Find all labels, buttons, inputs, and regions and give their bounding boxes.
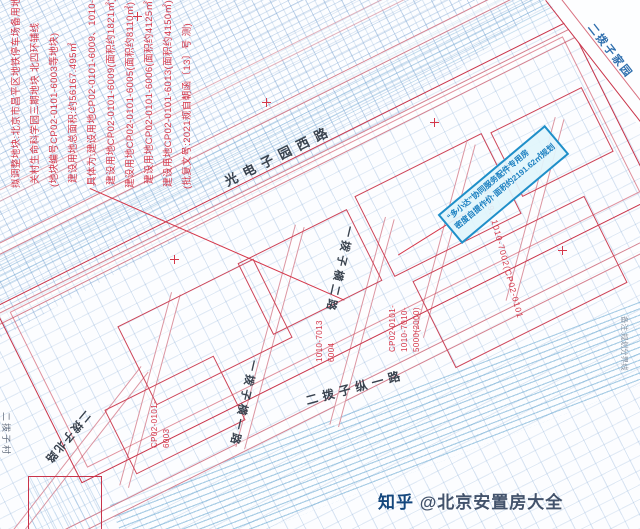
planning-map: 拟调整地块:北京市昌平区地铁停车场备用地中 关村生命科学园三期地块 北四环辅线 … — [0, 0, 640, 529]
adjacent-parcel-box — [28, 476, 102, 529]
parcel-code: CP02-0101- — [150, 401, 159, 448]
notice-line: 建设用地CP02-0101-6013(面积约4150㎡) — [160, 0, 174, 187]
parcel-code: CP02-0101- — [388, 305, 397, 352]
watermark-brand: 知乎 — [378, 493, 414, 512]
parcel-code: 6003 — [162, 429, 171, 448]
watermark-handle: @北京安置房大全 — [420, 493, 564, 512]
parcel-code: 1010-7013 — [315, 320, 324, 362]
parcel-code: 6004 — [327, 343, 336, 362]
parcel-code: 1010-7010- — [400, 307, 409, 352]
notice-line: 具体为:建设用地CP02-0101-6009、1010- — [84, 0, 98, 186]
parcel-code: 5000(2000) — [412, 307, 421, 352]
notice-line: 建设用地CP02-0101-6009(面积约1821㎡) — [103, 0, 117, 185]
notice-line: 拟调整地块:北京市昌平区地铁停车场备用地中 — [8, 0, 22, 188]
village-label: 二拨子村 — [0, 412, 13, 456]
survey-cross-icon — [262, 98, 271, 107]
notice-line: 建设用地总面积:约56167.495㎡ — [65, 42, 79, 183]
survey-cross-icon — [558, 246, 567, 255]
map-side-note: 备注:规划分界线 — [619, 316, 630, 371]
notice-line: (地块编号CP02-0101-6003等地块) — [46, 33, 60, 187]
notice-line: (批复文号:2021规自朝函〔13〕号 测) — [179, 23, 193, 189]
notice-line: 建设用地CP02-0101-6005(面积约8110㎡) — [122, 2, 136, 188]
survey-cross-icon — [430, 118, 439, 127]
notice-line: 建设用地CP02-0101-6006(面积约4125㎡) — [141, 0, 155, 184]
survey-cross-icon — [170, 255, 179, 264]
notice-line: 关村生命科学园三期地块 北四环辅线 — [27, 23, 41, 184]
watermark: 知乎 @北京安置房大全 — [378, 488, 563, 513]
